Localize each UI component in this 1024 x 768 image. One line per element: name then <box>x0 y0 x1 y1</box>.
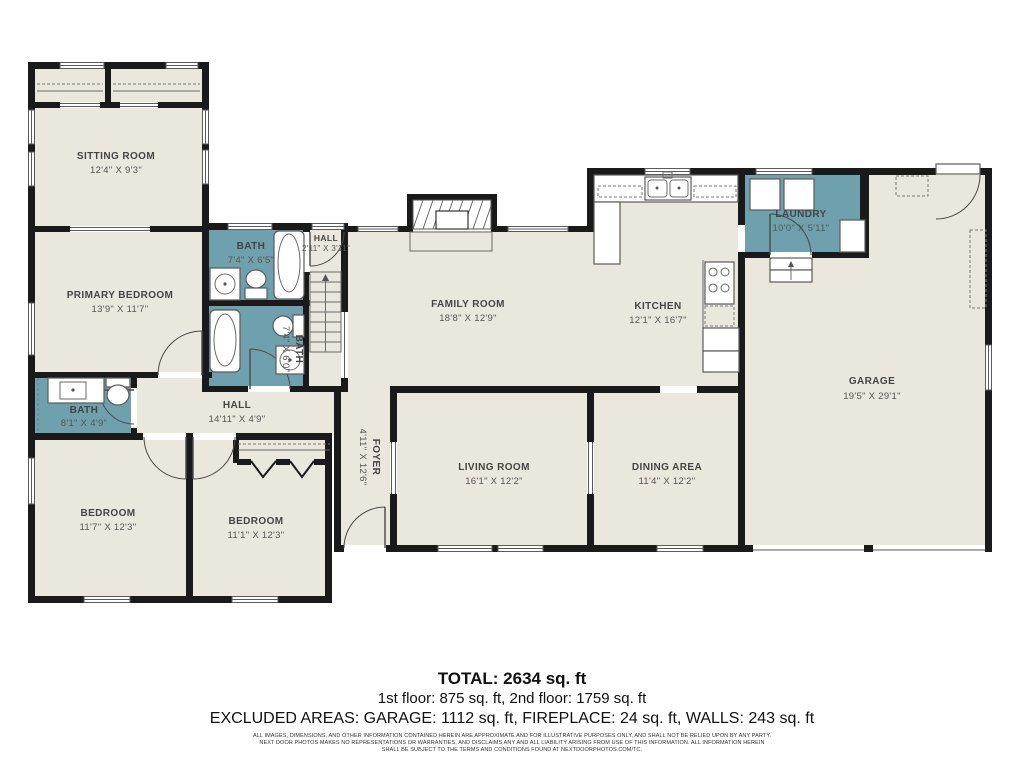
wall <box>587 390 594 442</box>
room-label-bath-upper: BATH <box>237 241 266 252</box>
fridge-icon <box>703 328 739 372</box>
door-opening <box>248 386 290 392</box>
room-dims-hall-upper: 2'11" X 3'11" <box>302 244 350 253</box>
closet-slider-opening <box>60 102 100 108</box>
fireplace-wall <box>407 194 413 232</box>
wall <box>334 390 341 552</box>
window <box>498 546 543 552</box>
window <box>312 224 344 230</box>
cased-opening <box>390 442 397 494</box>
room-label-bedroom2: BEDROOM <box>228 516 283 527</box>
room-family-floor <box>344 231 592 390</box>
cased-opening <box>70 226 150 232</box>
wall <box>341 378 348 392</box>
room-label-hall-upper: HALL <box>314 233 338 243</box>
window <box>29 110 35 144</box>
closet-slider-opening <box>120 102 158 108</box>
room-label-dining: DINING AREA <box>632 462 702 473</box>
room-dims-dining: 11'4" X 12'2" <box>639 476 696 487</box>
window <box>84 597 130 603</box>
door-opening <box>143 433 186 440</box>
toilet-icon <box>245 270 267 299</box>
bathtub-icon <box>274 231 304 299</box>
excluded-areas-text: EXCLUDED AREAS: GARAGE: 1112 sq. ft, FIR… <box>0 709 1024 729</box>
disclaimer-line2: NEXT DOOR PHOTOS MAKES NO REPRESENTATION… <box>0 740 1024 747</box>
floor-fills <box>31 65 989 598</box>
wall <box>105 65 111 108</box>
wall <box>738 168 745 228</box>
room-dims-hall: 14'11" X 4'9" <box>209 414 266 425</box>
room-dims-living: 16'1" X 12'2" <box>465 476 523 487</box>
washer-icon <box>750 179 780 210</box>
window <box>166 63 198 69</box>
door-opening <box>131 388 137 428</box>
garage-door-post <box>864 545 873 552</box>
room-dims-bath-upper: 7'4" X 6'5" <box>228 255 274 266</box>
room-label-living: LIVING ROOM <box>458 462 530 473</box>
room-label-family: FAMILY ROOM <box>431 299 505 310</box>
room-dims-sitting: 12'4" X 9'3" <box>90 165 142 176</box>
closet-wall <box>237 459 251 465</box>
disclaimer-line1: ALL IMAGES, DIMENSIONS, AND OTHER INFORM… <box>0 733 1024 740</box>
room-label-foyer: FOYER <box>370 439 381 476</box>
room-dims-laundry: 10'0" X 5'11" <box>773 223 830 234</box>
fireplace-wall <box>491 194 497 232</box>
room-label-sitting: SITTING ROOM <box>77 151 155 162</box>
room-label-garage: GARAGE <box>849 376 895 387</box>
wall <box>202 300 310 306</box>
door-opening <box>770 252 812 258</box>
window <box>228 224 272 230</box>
closet-wall <box>276 459 290 465</box>
wall <box>587 494 594 547</box>
room-label-hall: HALL <box>223 400 251 411</box>
room-dims-bath-left: 8'1" X 4'9" <box>61 418 107 429</box>
room-dims-family: 18'8" X 12'9" <box>439 313 497 324</box>
toilet-icon <box>106 378 130 405</box>
wall <box>28 596 332 603</box>
wall <box>390 386 660 393</box>
door-opening <box>158 372 202 378</box>
room-dims-bath-mid: 7'4" X 6'0" <box>280 326 291 372</box>
room-primary-floor <box>31 228 209 376</box>
room-sitting-floor <box>31 65 202 230</box>
total-area-text: TOTAL: 2634 sq. ft <box>0 668 1024 689</box>
stair-railing <box>341 312 348 378</box>
window <box>29 303 35 355</box>
wall <box>202 62 209 230</box>
sink-vanity-icon <box>48 378 104 403</box>
window <box>203 110 209 144</box>
window <box>232 597 278 603</box>
cased-opening <box>587 442 594 494</box>
door-opening <box>193 433 236 440</box>
room-label-kitchen: KITCHEN <box>634 301 681 312</box>
fireplace-wall <box>407 194 497 200</box>
window <box>657 546 703 552</box>
room-dims-foyer: 4'11" X 12'6" <box>357 429 368 486</box>
garage-door-opening <box>753 545 864 552</box>
wall <box>341 228 348 312</box>
window <box>358 227 398 232</box>
wall <box>697 386 745 393</box>
room-dims-garage: 19'5" X 29'1" <box>843 391 901 402</box>
dryer-icon <box>784 179 814 210</box>
floorplan-page: SITTING ROOM 12'4" X 9'3" PRIMARY BEDROO… <box>0 0 1024 768</box>
front-door-opening <box>344 545 386 552</box>
passage-opening <box>660 386 697 393</box>
window <box>438 546 492 552</box>
summary-footer: TOTAL: 2634 sq. ft 1st floor: 875 sq. ft… <box>0 668 1024 754</box>
wall <box>738 252 745 552</box>
window <box>29 152 35 186</box>
wall <box>28 102 209 108</box>
room-dims-kitchen: 12'1" X 16'7" <box>629 315 687 326</box>
wall <box>202 225 209 390</box>
room-dims-primary: 13'9" X 11'7" <box>92 304 149 315</box>
wall <box>390 494 397 547</box>
passage-opening <box>738 225 745 252</box>
disclaimer-line3: SHALL BE SUBJECT TO THE TERMS AND CONDIT… <box>0 747 1024 754</box>
sink-vanity-icon <box>210 268 240 300</box>
wall <box>325 433 332 600</box>
room-dims-bedroom1: 11'7" X 12'3" <box>80 522 137 533</box>
window <box>60 63 104 69</box>
room-label-bath-left: BATH <box>70 405 99 416</box>
disclaimer-text: ALL IMAGES, DIMENSIONS, AND OTHER INFORM… <box>0 733 1024 754</box>
room-label-primary: PRIMARY BEDROOM <box>67 290 174 301</box>
room-label-bedroom1: BEDROOM <box>80 508 135 519</box>
floor-areas-text: 1st floor: 875 sq. ft, 2nd floor: 1759 s… <box>0 689 1024 709</box>
wall <box>186 436 193 596</box>
laundry-steps <box>770 258 812 282</box>
garage-door-opening <box>873 545 985 552</box>
closet-wall <box>314 459 332 465</box>
window <box>29 458 35 504</box>
floorplan-drawing: SITTING ROOM 12'4" X 9'3" PRIMARY BEDROO… <box>0 0 1024 660</box>
window <box>986 345 992 390</box>
bathtub-icon <box>210 310 240 372</box>
stove-icon <box>705 262 734 304</box>
wall <box>390 390 397 442</box>
window <box>756 169 812 175</box>
window <box>508 227 568 232</box>
wall <box>587 168 594 232</box>
room-label-laundry: LAUNDRY <box>775 209 826 220</box>
room-label-bath-mid: BATH <box>293 335 304 364</box>
window <box>203 150 209 184</box>
room-dims-bedroom2: 11'1" X 12'3" <box>228 530 285 541</box>
utility-sink-icon <box>840 220 865 252</box>
